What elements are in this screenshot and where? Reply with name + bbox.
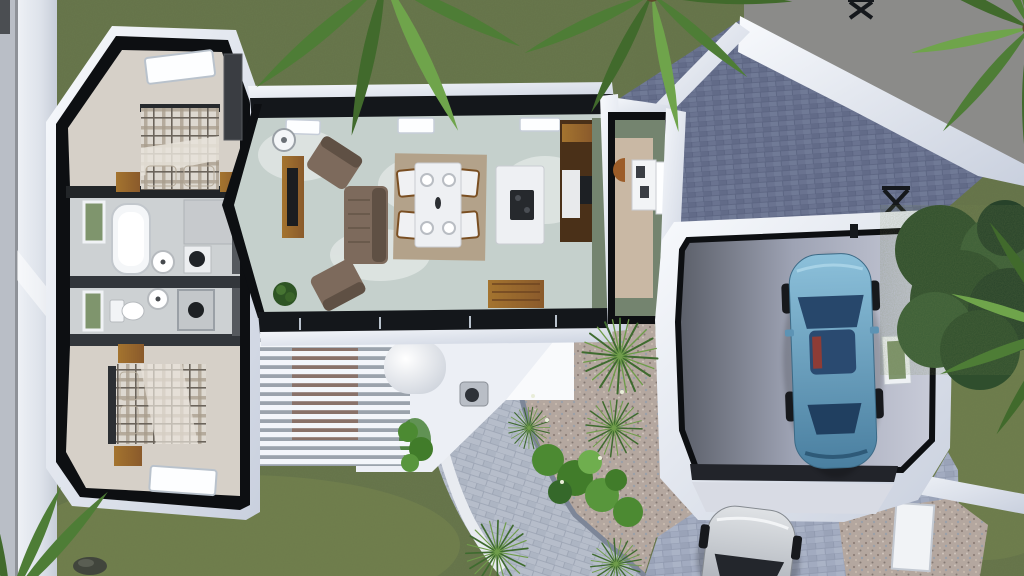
half-wall [232, 288, 240, 336]
ceiling-lamp [273, 129, 295, 151]
pillow [120, 406, 138, 434]
wall-fixture [850, 224, 858, 238]
windshield [798, 295, 865, 329]
nightstand [118, 344, 144, 363]
cubby-shelf [632, 160, 656, 210]
blue-sedan [779, 252, 887, 479]
floor-plan-render [0, 0, 1024, 576]
shower [178, 290, 214, 330]
oven [580, 176, 594, 204]
skylight [149, 466, 217, 496]
fridge [562, 170, 580, 218]
side-mirror [785, 329, 794, 336]
tv-screen [287, 168, 298, 226]
potted-plant [273, 282, 297, 306]
washer-door [189, 251, 205, 267]
dining-area [393, 153, 487, 261]
nightstand [116, 172, 140, 192]
middle-wing [222, 82, 628, 346]
fence-notch [0, 0, 10, 34]
garden-window [84, 292, 102, 330]
garden-rock [73, 557, 107, 575]
round-planter [384, 340, 446, 394]
wall-bath2-bed2 [70, 334, 240, 346]
bed-1 [140, 104, 220, 190]
interior-seats [812, 336, 822, 368]
toilet [110, 300, 144, 322]
shower-drain [188, 302, 204, 318]
bed-2 [108, 364, 206, 444]
bathtub-basin [118, 212, 144, 266]
side-mirror [870, 326, 879, 333]
wardrobe [224, 54, 242, 140]
wall-bath1-bath2 [70, 276, 240, 288]
left-wing [46, 26, 260, 520]
scene-canvas [0, 0, 1024, 576]
rear-window [807, 403, 862, 435]
nightstand [114, 446, 142, 466]
pillow [120, 372, 138, 400]
cooktop [510, 190, 534, 220]
table-vase [435, 197, 441, 209]
sofa [344, 186, 388, 264]
outdoor-grill [460, 382, 488, 406]
upper-cabinet [562, 124, 592, 142]
pillow [184, 166, 214, 186]
garden-window [84, 202, 104, 242]
garden-pillar [892, 503, 935, 571]
garage-door-threshold [690, 464, 898, 482]
tv-console [282, 156, 304, 238]
pillow [146, 166, 176, 186]
